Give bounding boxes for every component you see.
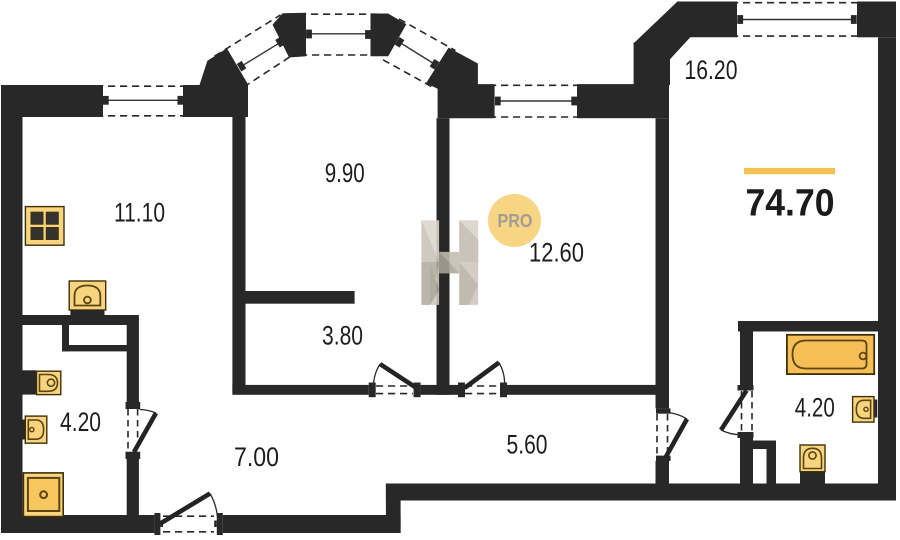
svg-text:3.80: 3.80 [322,321,363,351]
svg-text:9.90: 9.90 [325,158,365,188]
svg-text:16.20: 16.20 [685,55,738,85]
svg-text:PRO: PRO [498,211,533,231]
svg-text:5.60: 5.60 [507,430,548,460]
svg-text:12.60: 12.60 [529,238,584,268]
svg-text:74.70: 74.70 [746,182,835,224]
svg-text:4.20: 4.20 [795,393,835,423]
svg-text:4.20: 4.20 [60,407,101,437]
svg-text:11.10: 11.10 [114,198,165,228]
svg-text:7.00: 7.00 [234,442,279,472]
